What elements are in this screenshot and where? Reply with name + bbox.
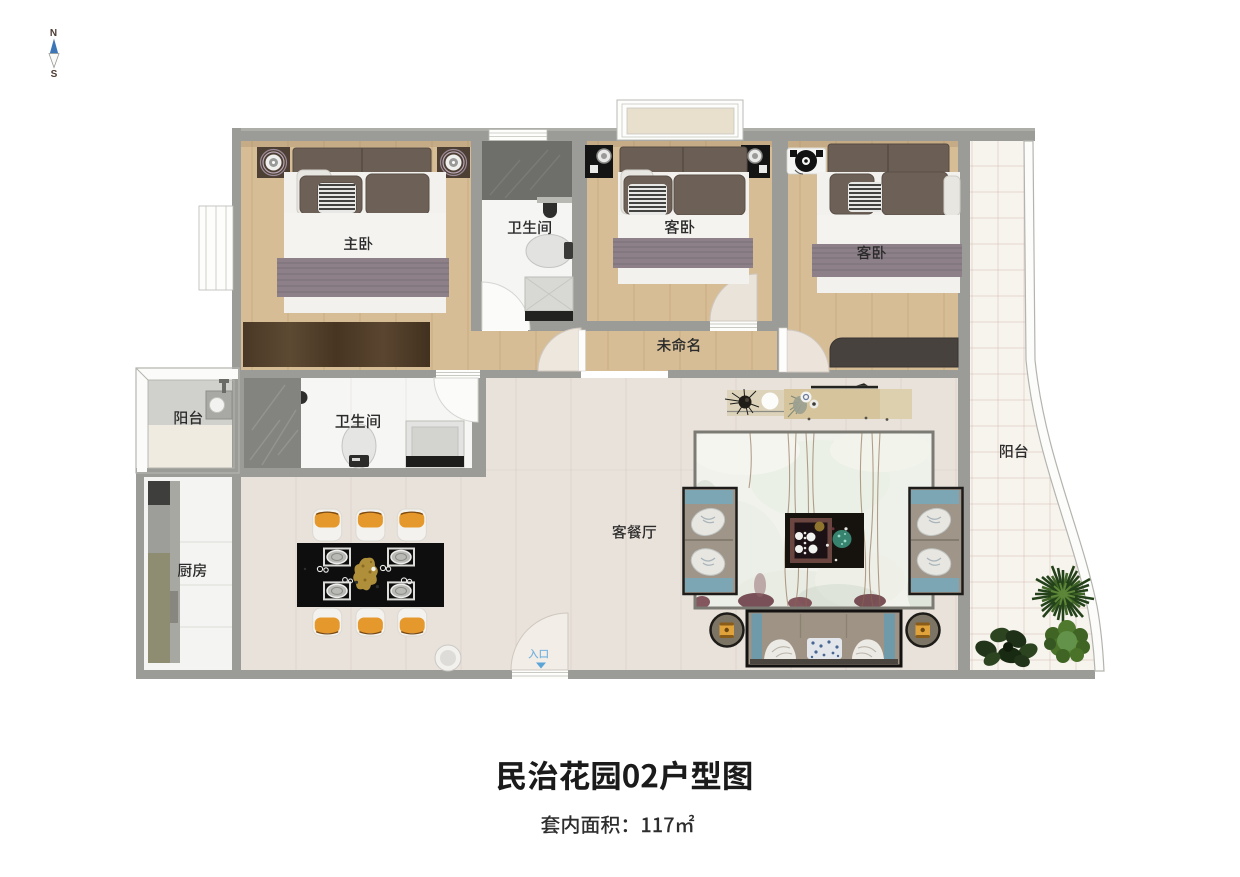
svg-text:N: N xyxy=(50,28,57,39)
svg-text:S: S xyxy=(51,69,58,80)
